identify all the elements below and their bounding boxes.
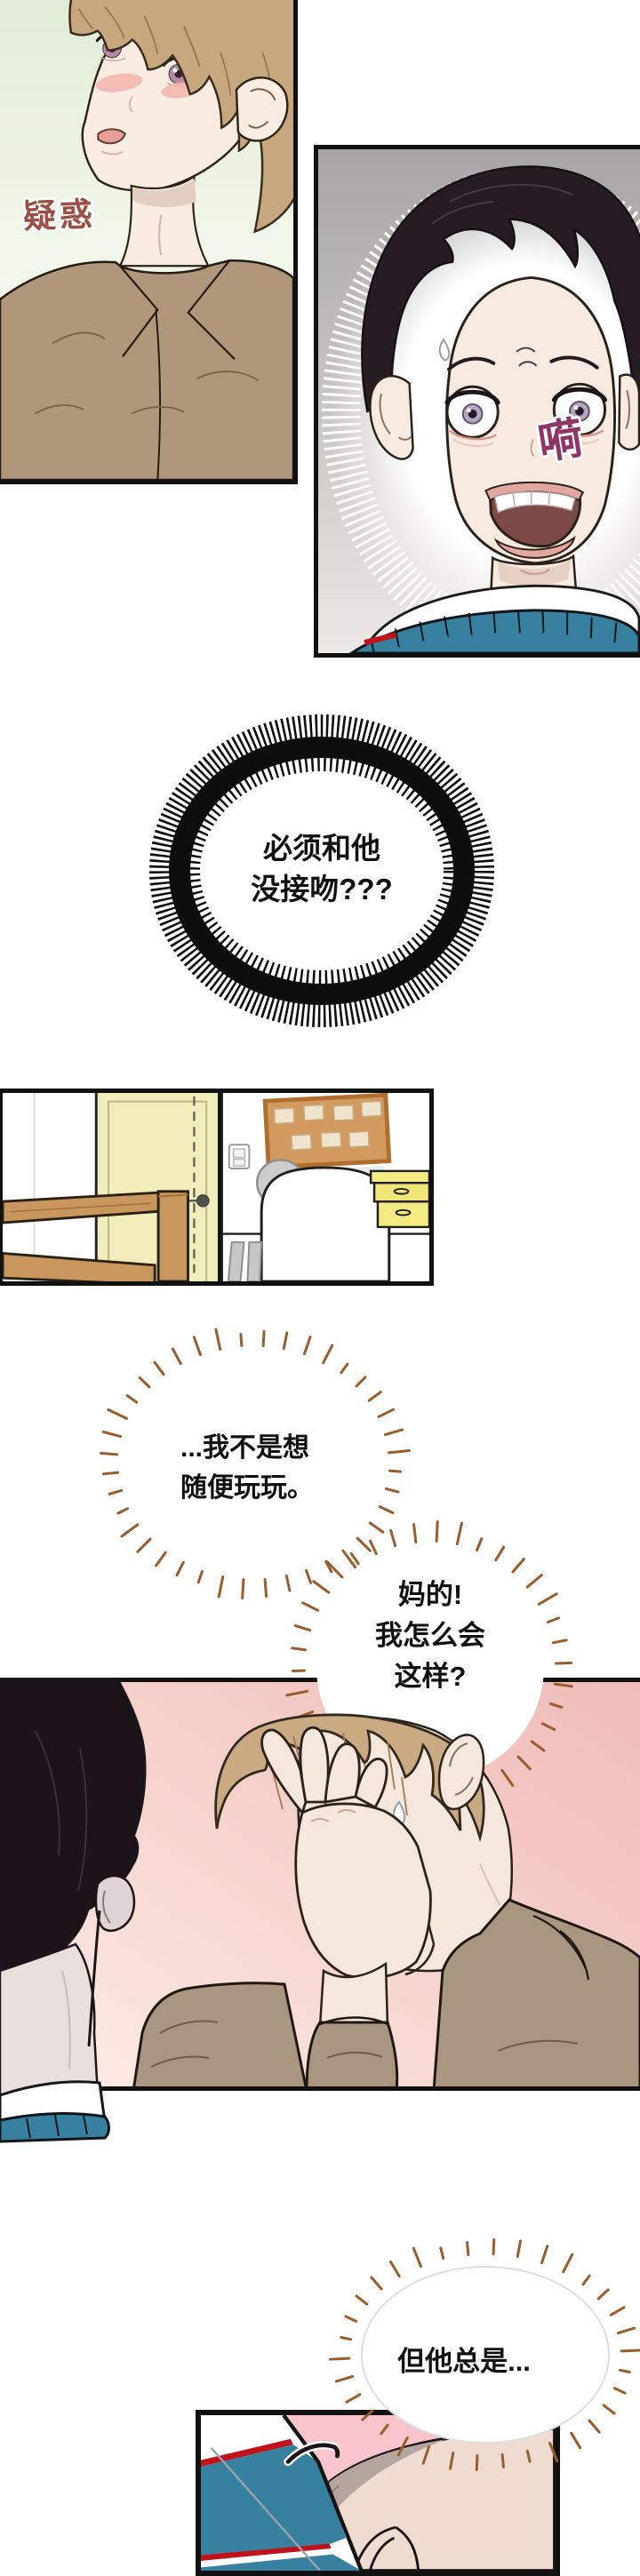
- burst-tick: [617, 2326, 636, 2334]
- burst-tick: [283, 1332, 289, 1351]
- panel-facepalm-bottom-border: [0, 2086, 640, 2091]
- burst-tick: [311, 1580, 331, 1595]
- burst-tick: [562, 2253, 574, 2274]
- burst-tick: [555, 1662, 572, 1665]
- burst-tick: [370, 2276, 384, 2291]
- bubble3-line-1: 但他总是...: [397, 2342, 531, 2381]
- burst-tick: [602, 2403, 616, 2415]
- bubble1-line-2: 随便玩玩。: [180, 1468, 314, 1508]
- cork-board: [265, 1095, 389, 1167]
- burst-tick: [609, 2306, 625, 2317]
- burst-tick: [546, 1616, 560, 1623]
- burst-tick: [172, 1347, 183, 1366]
- burst-tick: [340, 2336, 352, 2341]
- burst-tick: [540, 2245, 549, 2265]
- burst-tick: [100, 1452, 119, 1456]
- burst-tick: [120, 1523, 140, 1538]
- burst-tick: [261, 1331, 265, 1348]
- burst-tick: [192, 1336, 202, 1357]
- burst-tick: [116, 1506, 130, 1514]
- burst-tick: [388, 1470, 402, 1473]
- burst-tick: [264, 1577, 268, 1597]
- thought-bubble: 必须和他 没接吻???: [126, 702, 517, 1040]
- burst-tick: [101, 1430, 122, 1438]
- burst-tick: [136, 1537, 152, 1553]
- burst-tick: [303, 1336, 312, 1355]
- thought-line-1: 必须和他: [126, 828, 517, 869]
- burst-tick: [388, 2260, 401, 2278]
- burst-tick: [569, 2431, 581, 2450]
- burst-tick: [340, 1362, 349, 1375]
- burst-tick: [619, 2368, 631, 2373]
- burst-tick: [552, 1639, 568, 1644]
- panel-room-interior: [0, 1089, 434, 1286]
- burst-tick: [494, 1545, 506, 1561]
- speech-bubble-2-text: 妈的! 我怎么会 这样?: [375, 1575, 485, 1697]
- burst-tick: [466, 2241, 470, 2256]
- burst-tick: [620, 2349, 640, 2352]
- burst-tick: [588, 2419, 602, 2434]
- burst-tick: [346, 2393, 362, 2404]
- burst-tick: [439, 2247, 444, 2261]
- burst-tick: [293, 1623, 311, 1631]
- burst-tick: [537, 1591, 558, 1606]
- bubble2-line-1: 妈的!: [375, 1575, 485, 1615]
- burst-tick: [344, 2315, 358, 2324]
- burst-tick: [476, 1536, 484, 1551]
- speech-bubble-1-text: ...我不是想 随便玩玩。: [180, 1428, 314, 1508]
- shocked-man-art: [318, 149, 640, 653]
- sfx-doubt-text: 疑惑: [22, 187, 97, 238]
- burst-tick: [196, 1569, 204, 1583]
- burst-tick: [516, 2239, 523, 2258]
- burst-tick: [355, 2294, 369, 2307]
- burst-tick: [153, 1360, 165, 1376]
- webtoon-page: 疑惑: [0, 0, 640, 2576]
- bubble2-line-3: 这样?: [375, 1656, 485, 1697]
- room-art: [3, 1093, 429, 1281]
- burst-tick: [377, 1408, 395, 1418]
- burst-tick: [367, 1391, 382, 1403]
- burst-tick: [384, 1428, 404, 1436]
- burst-tick: [388, 1449, 411, 1455]
- burst-tick: [412, 1523, 418, 1543]
- blond-portrait-art: [0, 0, 293, 480]
- burst-tick: [214, 1328, 221, 1351]
- burst-tick: [412, 2246, 422, 2268]
- burst-tick: [436, 1520, 439, 1543]
- burst-tick: [239, 1333, 243, 1348]
- burst-tick: [101, 1471, 118, 1476]
- speech-bubble-3-text: 但他总是...: [397, 2342, 531, 2381]
- burst-tick: [510, 1558, 524, 1574]
- burst-tick: [385, 1487, 400, 1494]
- burst-tick: [284, 1575, 291, 1592]
- burst-tick: [138, 1376, 151, 1390]
- thought-text: 必须和他 没接吻???: [126, 828, 517, 910]
- burst-tick: [368, 1521, 385, 1535]
- burst-tick: [334, 2375, 354, 2383]
- panel-facepalm: [0, 1678, 640, 2091]
- burst-tick: [525, 1573, 543, 1588]
- thought-line-2: 没接吻???: [126, 869, 517, 910]
- burst-tick: [378, 1504, 395, 1514]
- panel-blond-portrait: 疑惑: [0, 0, 298, 484]
- burst-tick: [355, 1375, 367, 1387]
- burst-tick: [217, 1575, 224, 1598]
- burst-tick: [292, 1670, 306, 1672]
- burst-tick: [580, 2273, 591, 2285]
- burst-tick: [175, 1561, 185, 1577]
- burst-tick: [291, 1647, 307, 1651]
- burst-tick: [108, 1489, 123, 1496]
- burst-tick: [155, 1551, 167, 1567]
- burst-tick: [107, 1408, 128, 1421]
- burst-tick: [125, 1394, 139, 1404]
- bubble2-line-2: 我怎么会: [375, 1615, 485, 1656]
- burst-tick: [389, 1529, 397, 1548]
- burst-tick: [596, 2288, 610, 2301]
- burst-tick: [456, 1521, 464, 1545]
- burst-tick: [241, 1578, 244, 1599]
- panel-shocked-man: 嗬: [314, 145, 640, 658]
- burst-tick: [368, 1539, 378, 1555]
- burst-tick: [492, 2238, 495, 2255]
- burst-tick: [322, 1344, 334, 1364]
- bubble1-line-1: ...我不是想: [180, 1428, 314, 1468]
- burst-tick: [612, 2386, 627, 2395]
- burst-tick: [329, 2357, 350, 2360]
- burst-tick: [300, 1601, 319, 1613]
